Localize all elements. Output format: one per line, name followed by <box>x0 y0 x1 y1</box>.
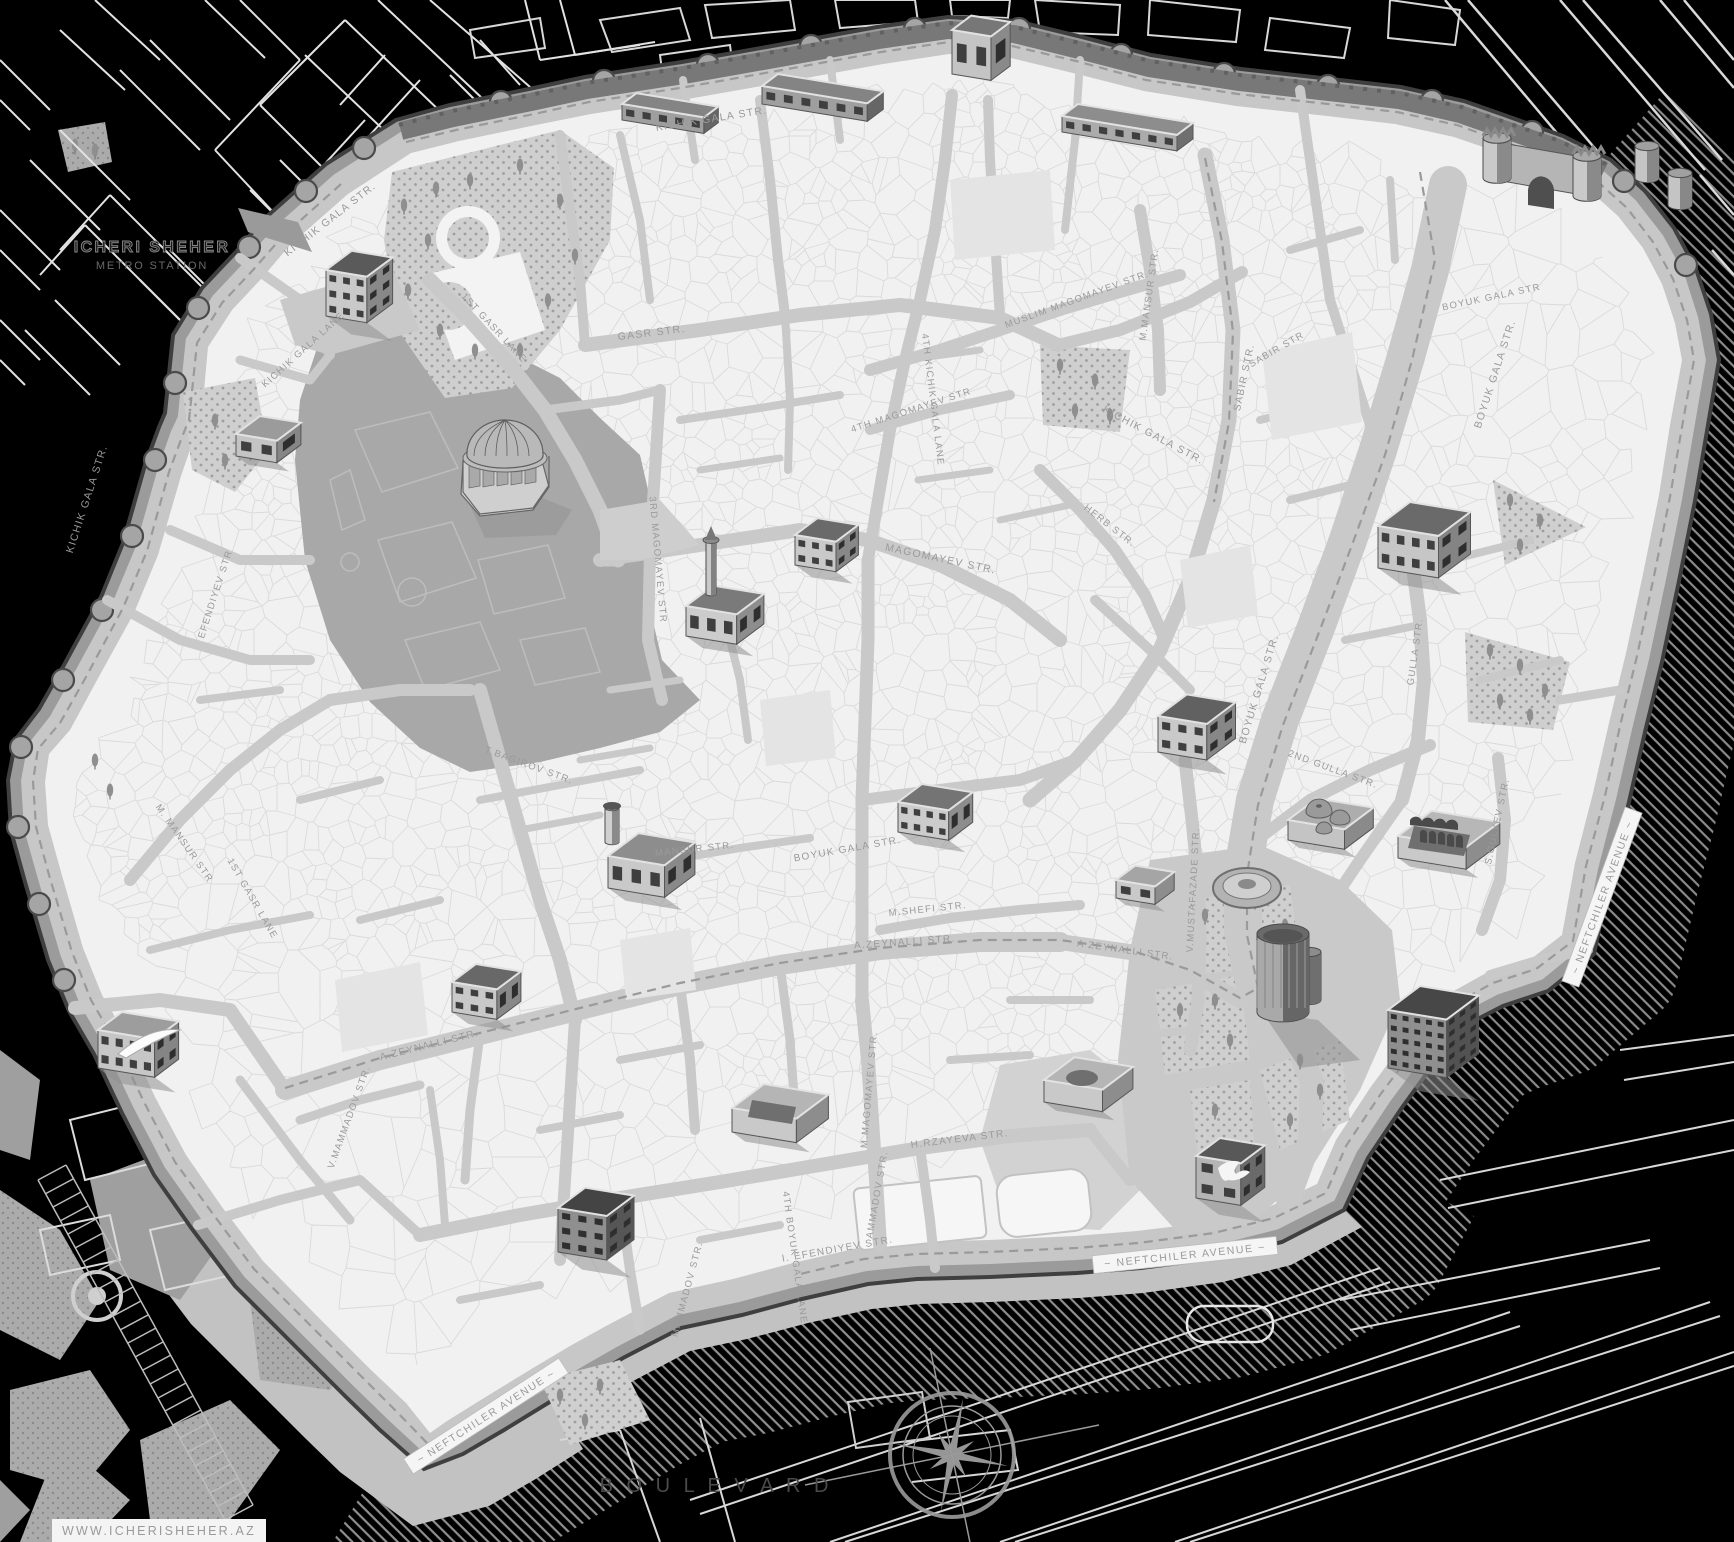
svg-text:ICHERI SHEHER: ICHERI SHEHER <box>74 239 231 256</box>
svg-text:WWW.ICHERISHEHER.AZ: WWW.ICHERISHEHER.AZ <box>62 1524 256 1538</box>
svg-text:B O U L E V A R D: B O U L E V A R D <box>600 1475 833 1497</box>
svg-text:METRO STATION: METRO STATION <box>96 260 208 272</box>
